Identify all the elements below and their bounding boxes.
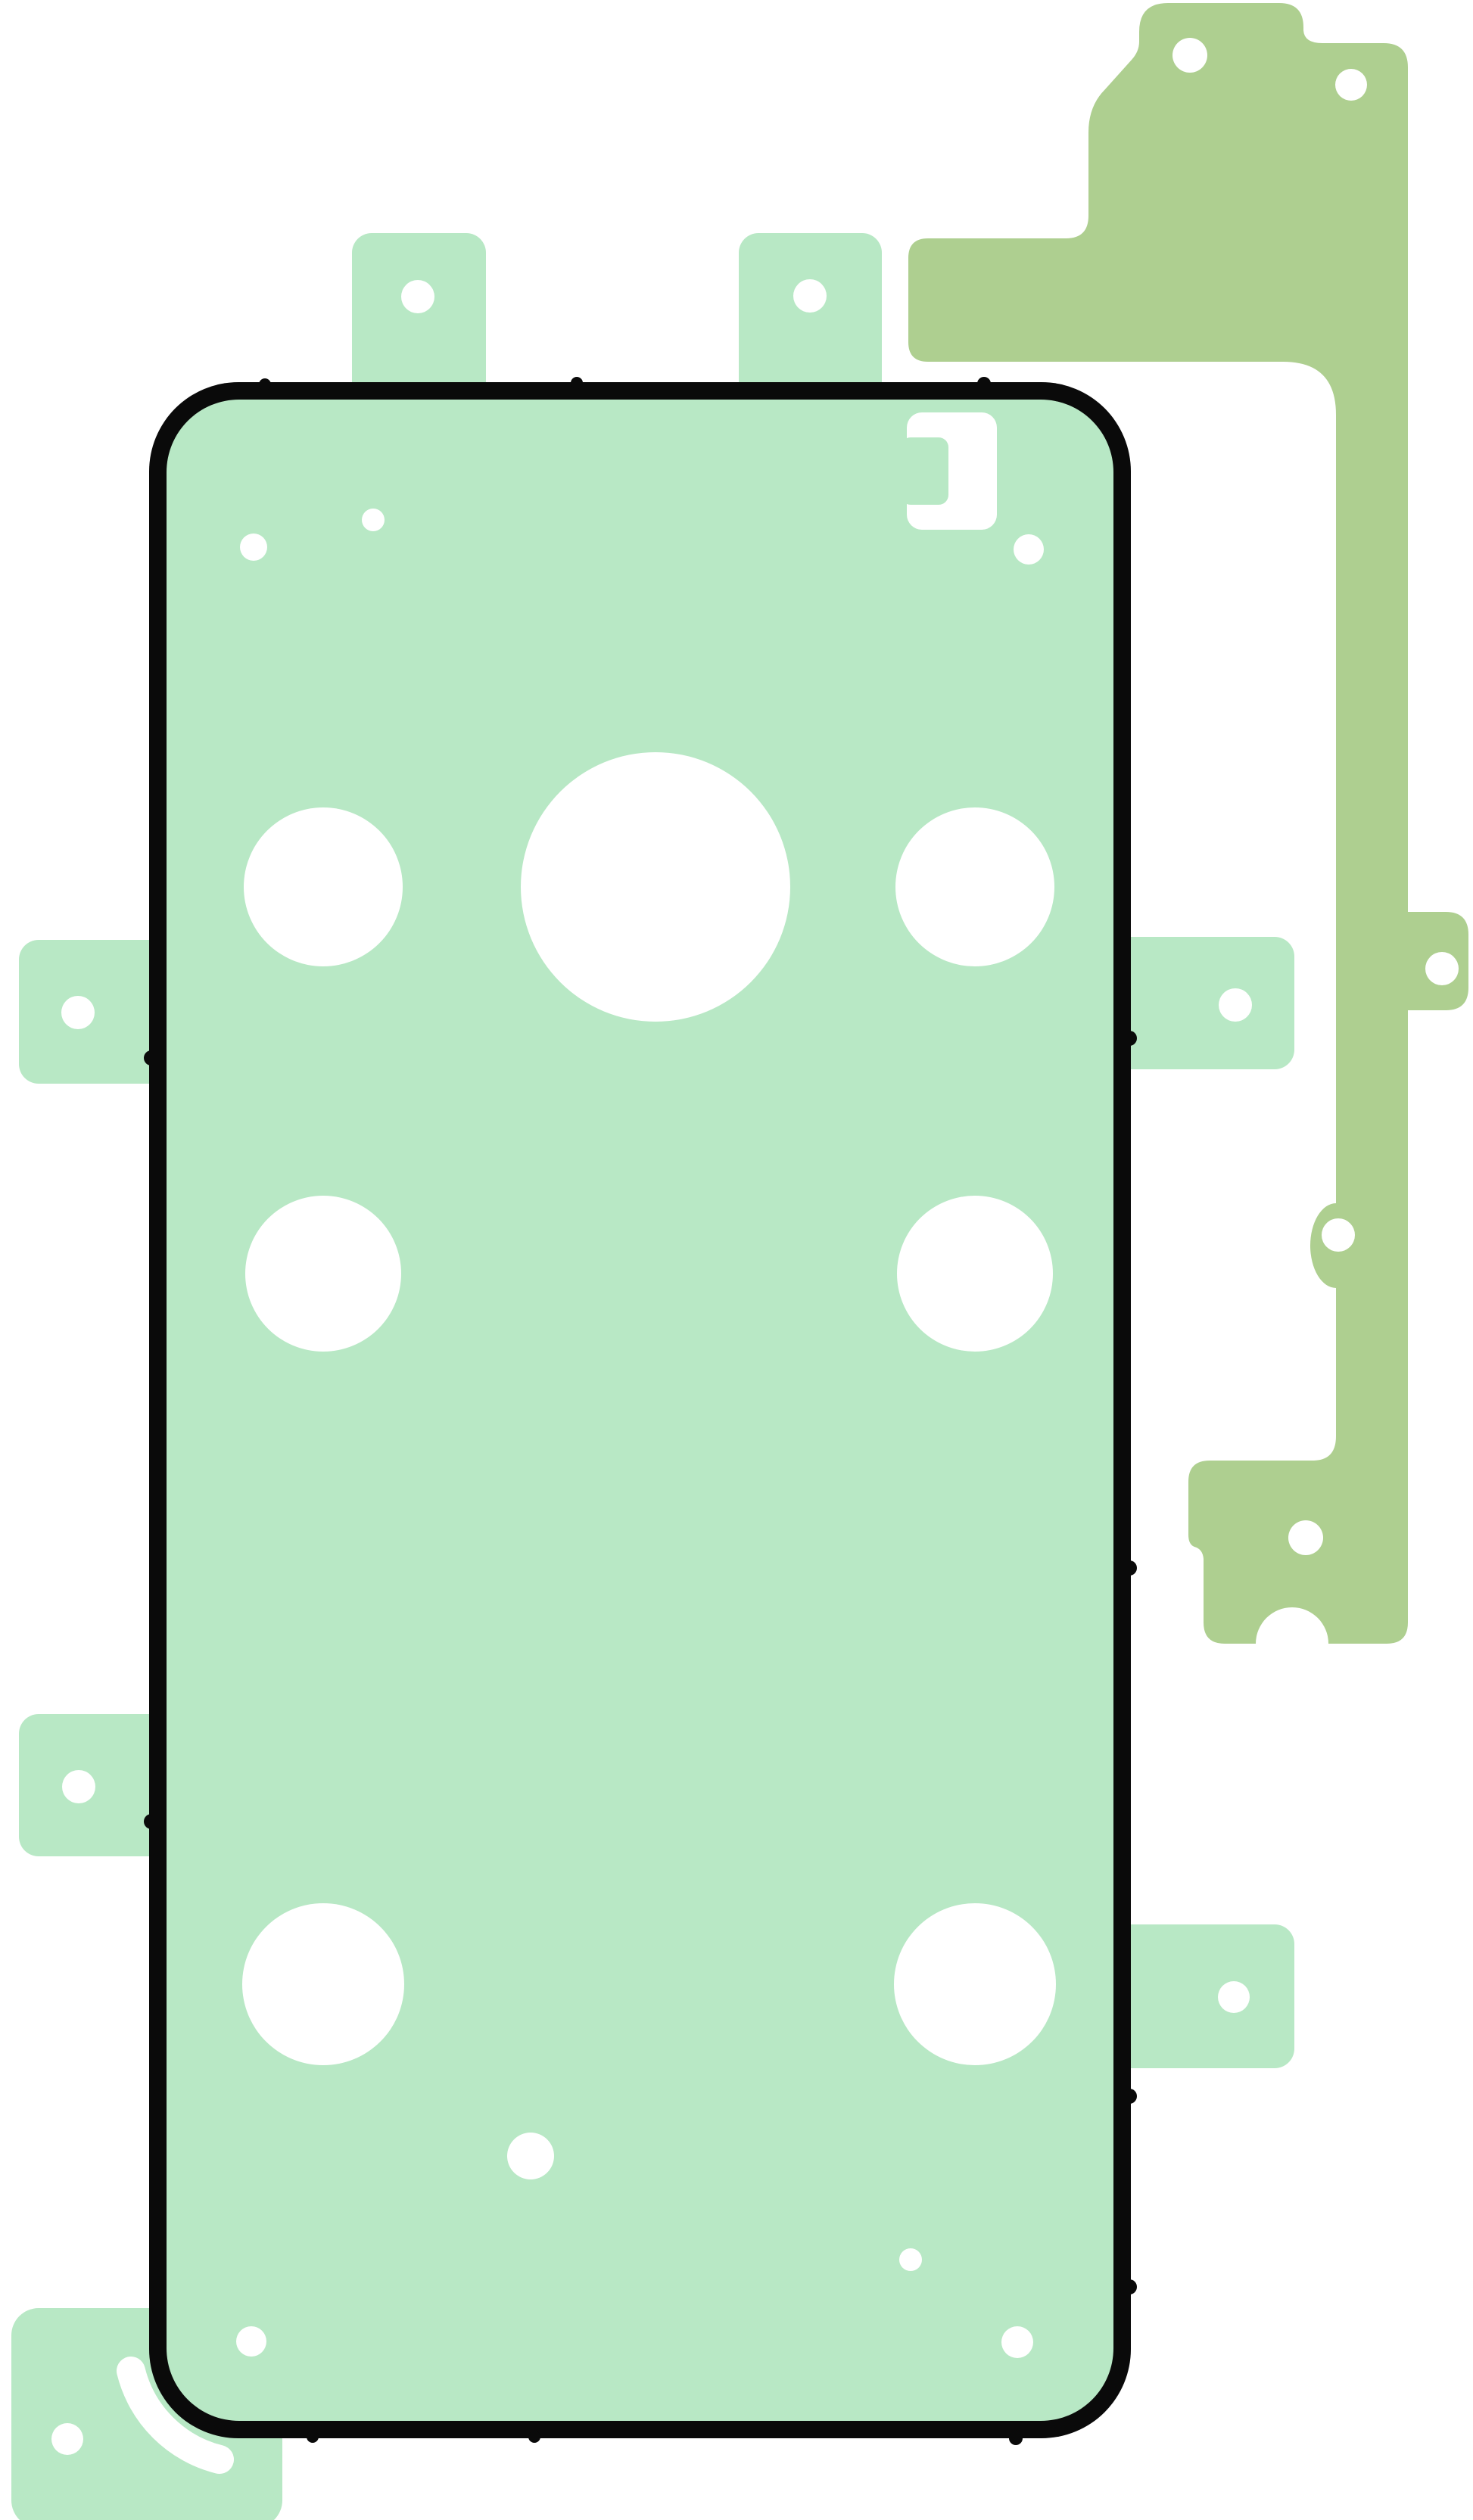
pull-tab-left-upper-hole — [61, 996, 95, 1029]
pull-tab-right-lower — [1117, 1924, 1294, 2068]
outline-bump-6 — [259, 378, 271, 390]
camera-cutout-5 — [242, 1903, 404, 2065]
outline-bump-1 — [144, 1814, 159, 1829]
alignment-dot-3 — [507, 2133, 554, 2179]
pull-tab-right-upper — [1117, 937, 1294, 1069]
alignment-dot-4 — [899, 2248, 922, 2271]
alignment-dot-6 — [1001, 2326, 1033, 2358]
camera-cutout-2 — [895, 807, 1054, 966]
side-rail-hole-0 — [1172, 38, 1207, 73]
product-image-canvas — [0, 0, 1473, 2520]
side-rail-hole-1 — [1335, 69, 1367, 101]
outline-bump-7 — [571, 377, 583, 389]
outline-bump-4 — [1122, 2089, 1137, 2104]
main-gasket-adhesive — [144, 377, 1137, 2445]
pull-tab-left-lower-hole — [62, 1770, 95, 1803]
bracket-cutout — [901, 412, 997, 530]
outline-bump-2 — [1122, 1031, 1137, 1046]
pull-tab-top-right-hole — [793, 279, 827, 313]
camera-cutout-1 — [521, 752, 790, 1022]
pull-tab-left-lower — [19, 1714, 167, 1856]
outline-bump-11 — [1009, 2431, 1023, 2445]
alignment-dot-2 — [1014, 534, 1044, 565]
corner-patch-hole — [51, 2423, 83, 2455]
side-rail-hole-2 — [1425, 952, 1459, 985]
pull-tab-top-left — [352, 233, 486, 396]
pull-tab-top-left-hole — [401, 280, 434, 313]
pull-tab-top-right-body — [739, 233, 882, 396]
pull-tab-top-right — [739, 233, 882, 396]
gasket-fill — [167, 400, 1113, 2421]
camera-cutout-3 — [245, 1196, 401, 1352]
camera-cutout-6 — [894, 1903, 1056, 2065]
pull-tab-right-upper-body — [1117, 937, 1294, 1069]
pull-tab-top-left-body — [352, 233, 486, 396]
alignment-dot-1 — [240, 534, 267, 561]
camera-cutout-0 — [244, 807, 403, 966]
alignment-dot-5 — [236, 2326, 266, 2357]
outline-bump-5 — [1122, 2279, 1137, 2294]
camera-cutout-4 — [897, 1196, 1053, 1352]
outline-bump-3 — [1122, 1560, 1137, 1576]
outline-bump-9 — [307, 2431, 319, 2443]
outline-bump-0 — [144, 1050, 159, 1066]
adhesive-kit-illustration — [0, 0, 1473, 2520]
outline-bump-10 — [528, 2431, 540, 2443]
pull-tab-right-lower-body — [1117, 1924, 1294, 2068]
pull-tab-right-upper-hole — [1219, 988, 1252, 1022]
alignment-dot-0 — [362, 509, 385, 531]
outline-bump-8 — [977, 377, 991, 390]
pull-tab-right-lower-hole — [1218, 1981, 1250, 2013]
side-rail-hole-3 — [1322, 1218, 1355, 1252]
side-rail-hole-4 — [1288, 1520, 1323, 1555]
bracket-cutout-notch — [901, 437, 948, 505]
pull-tab-left-upper — [19, 940, 167, 1084]
